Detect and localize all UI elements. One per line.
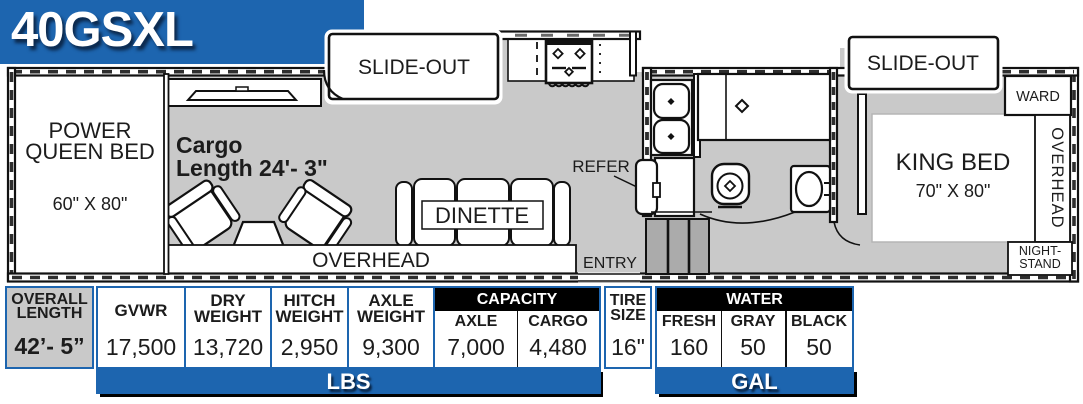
svg-text:NIGHT-: NIGHT-: [1019, 244, 1061, 258]
svg-text:70" X 80": 70" X 80": [916, 181, 991, 201]
svg-text:REFER: REFER: [572, 157, 630, 176]
svg-text:OVERHEAD: OVERHEAD: [312, 249, 430, 272]
svg-text:QUEEN BED: QUEEN BED: [25, 139, 155, 164]
svg-text:WARD: WARD: [1016, 89, 1060, 105]
svg-text:STAND: STAND: [1019, 257, 1060, 271]
svg-text:DINETTE: DINETTE: [435, 203, 529, 228]
svg-text:KING BED: KING BED: [896, 149, 1011, 176]
svg-text:ENTRY: ENTRY: [583, 255, 637, 272]
svg-text:SLIDE-OUT: SLIDE-OUT: [867, 52, 979, 75]
svg-text:SLIDE-OUT: SLIDE-OUT: [358, 56, 470, 79]
svg-text:OVERHEAD: OVERHEAD: [1048, 127, 1066, 228]
svg-text:Length 24'- 3": Length 24'- 3": [176, 155, 328, 181]
svg-text:60" X 80": 60" X 80": [53, 194, 128, 214]
